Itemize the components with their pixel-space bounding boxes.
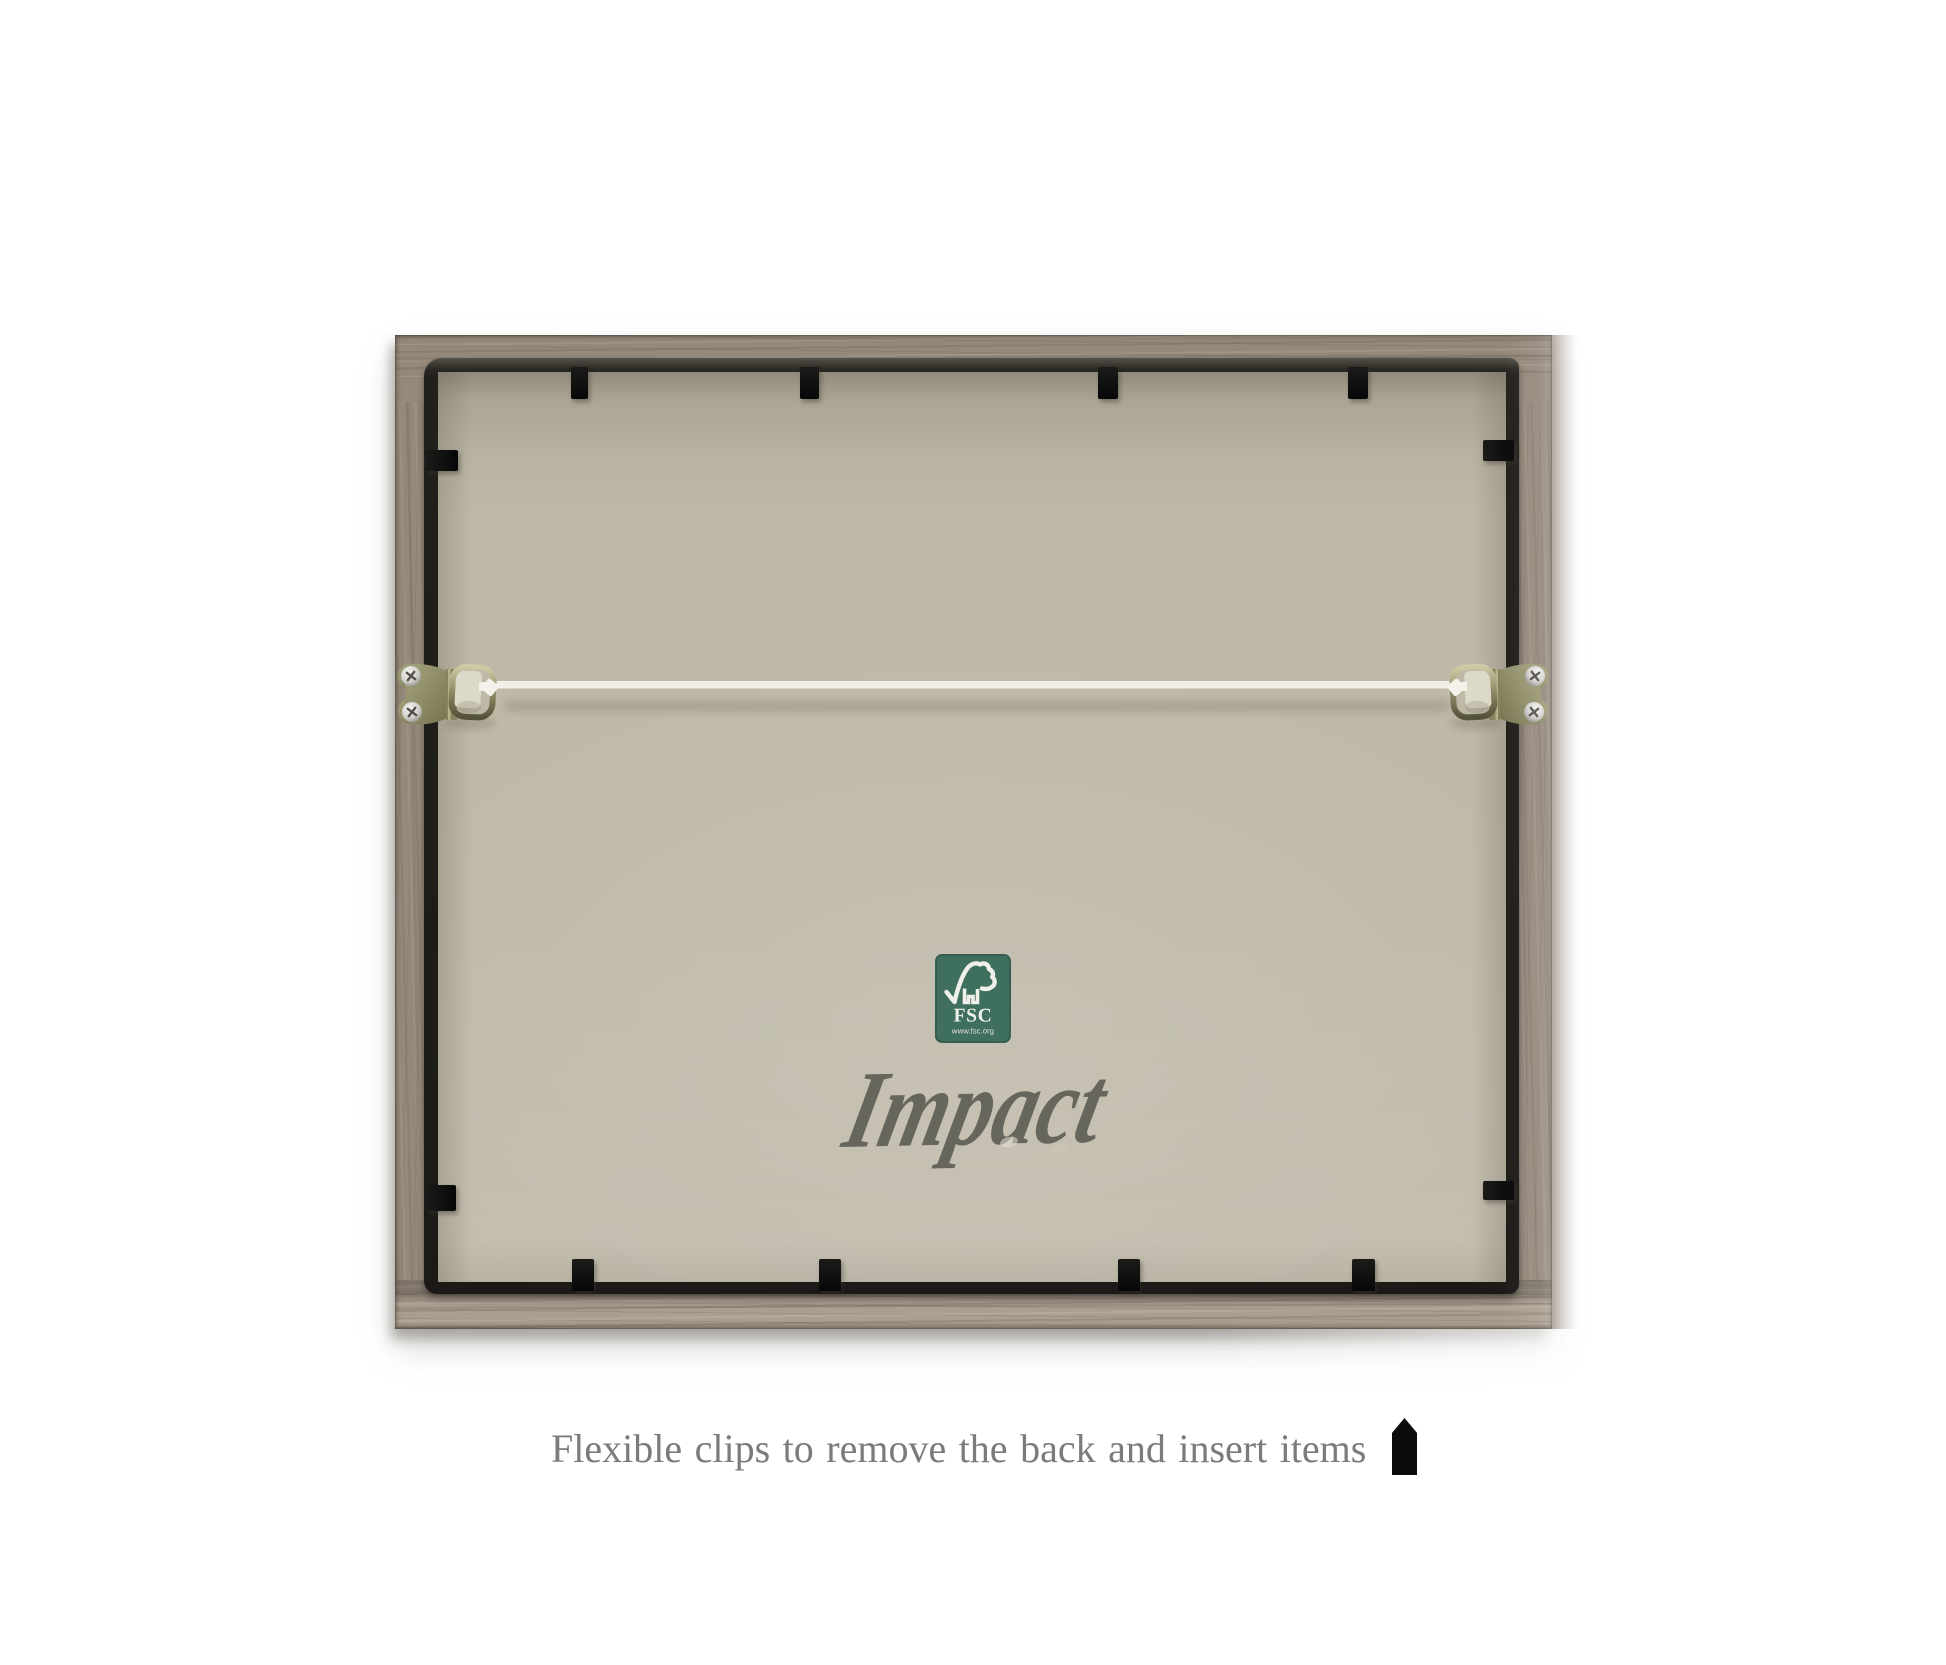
svg-text:FSC: FSC — [954, 1005, 993, 1026]
svg-text:www.fsc.org: www.fsc.org — [951, 1026, 994, 1035]
svg-text:Impact: Impact — [833, 1044, 1120, 1172]
